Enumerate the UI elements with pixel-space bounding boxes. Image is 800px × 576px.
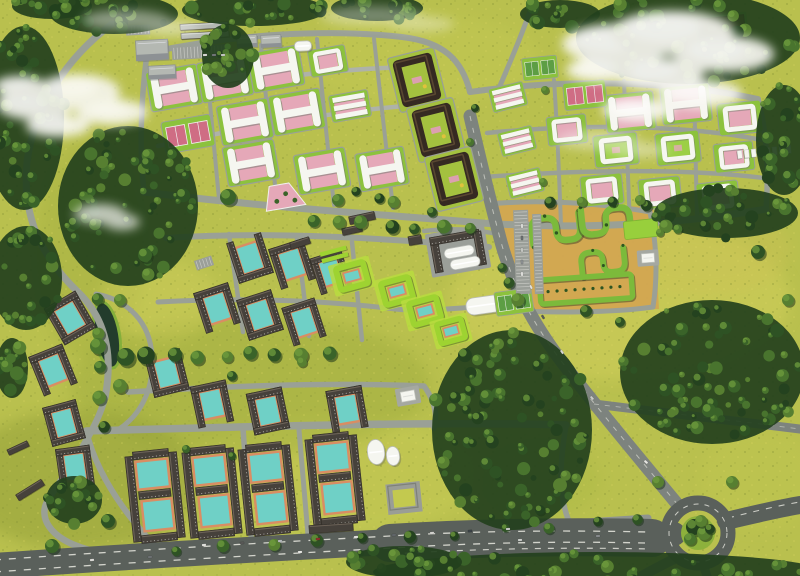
car [518,539,522,541]
building-block-h [268,88,326,136]
car [521,260,523,264]
car [430,532,434,534]
car [240,542,244,544]
building-block-warehouse [261,34,283,49]
car [596,535,600,537]
car [521,248,523,252]
masterplan-aerial-view [0,0,800,576]
building-block-double [237,441,298,538]
car [212,54,216,56]
car [202,544,206,546]
car [392,534,396,536]
car [521,224,523,228]
car [90,559,94,562]
car [354,536,358,538]
car [521,272,523,276]
car [298,551,302,553]
car [221,54,225,56]
car [203,54,207,56]
building-block-hall [294,40,313,53]
building-block-double [304,431,365,528]
building-block-h [222,139,280,187]
building-block-schoolU [384,480,423,516]
building-block-warehouse [148,65,177,81]
building-block-h [216,98,274,146]
building-block-kinder [637,249,660,267]
building-block-h [293,147,351,195]
car [506,528,510,530]
building-block-warehouse [135,39,169,62]
building-block-courts2g [521,55,558,81]
building-block-double [124,448,185,545]
building-block-courts2 [562,79,607,110]
car [468,530,472,532]
car [316,538,320,540]
building-block-lawn [623,218,659,239]
car [278,540,282,542]
masterplan-render [0,0,800,576]
building-block-ring [307,44,349,77]
building-block-h [354,146,409,192]
car [148,556,152,558]
forest-patch [58,126,198,286]
car [521,236,523,240]
